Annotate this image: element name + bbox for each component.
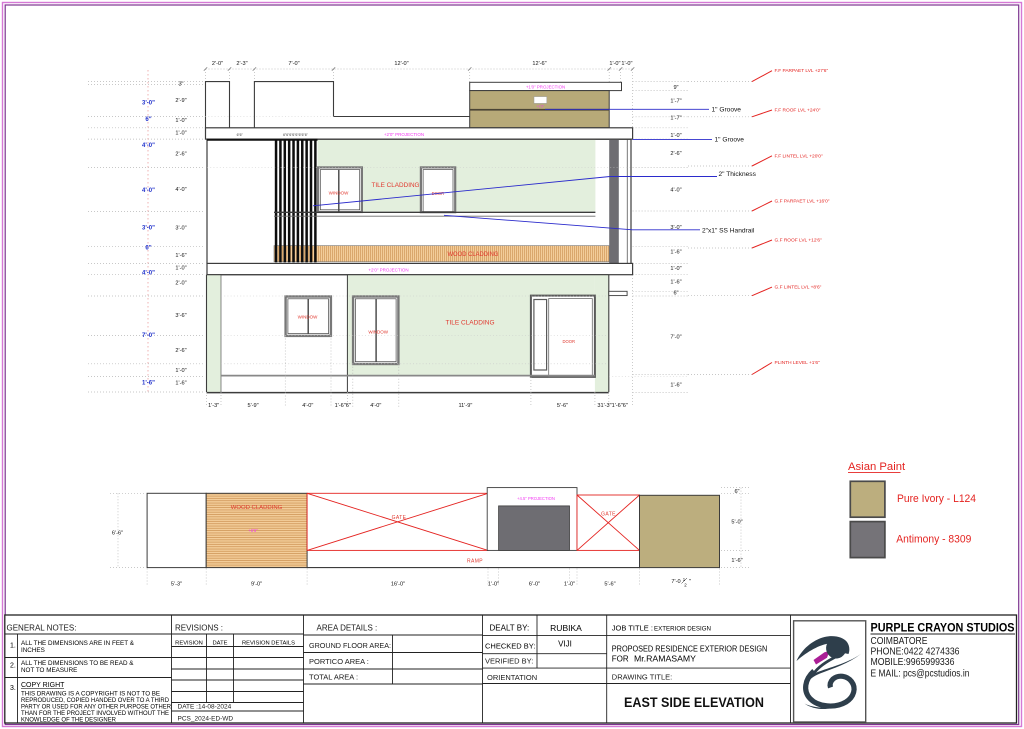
svg-text:2'-6": 2'-6" (670, 151, 681, 157)
svg-text:4'-0": 4'-0" (302, 403, 313, 409)
svg-text:CHECKED BY:: CHECKED BY: (485, 642, 535, 651)
svg-text:PCS_2024-ED-WD: PCS_2024-ED-WD (178, 716, 234, 723)
svg-text:2'-6": 2'-6" (175, 348, 186, 354)
svg-text:+2'0" PROJECTION: +2'0" PROJECTION (384, 132, 424, 137)
svg-text:3.: 3. (10, 685, 16, 692)
svg-text:9": 9" (673, 85, 678, 91)
svg-text:MOBILE:9965999336: MOBILE:9965999336 (871, 656, 955, 668)
svg-text:5'-6": 5'-6" (557, 403, 568, 409)
svg-text:1'-6": 1'-6" (670, 250, 681, 256)
svg-text:1" Groove: 1" Groove (712, 107, 742, 114)
svg-text:GROUND FLOOR AREA:: GROUND FLOOR AREA: (309, 641, 391, 650)
svg-text:DATE :14-08-2024: DATE :14-08-2024 (178, 704, 232, 711)
svg-text:ALL THE DIMENSIONS ARE IN FEET: ALL THE DIMENSIONS ARE IN FEET & (21, 640, 135, 647)
svg-text:1'-7": 1'-7" (670, 115, 681, 121)
svg-text:WOOD CLADDING: WOOD CLADDING (231, 505, 283, 511)
svg-text:GENERAL NOTES:: GENERAL NOTES: (7, 624, 77, 633)
svg-text:7'-0: 7'-0 (671, 579, 680, 585)
svg-text:4'-0": 4'-0" (142, 188, 155, 194)
svg-text:PROPOSED RESIDENCE EXTERIOR DE: PROPOSED RESIDENCE EXTERIOR DESIGN (612, 645, 768, 654)
svg-text:6'-0": 6'-0" (529, 582, 540, 588)
svg-text:2'-0": 2'-0" (212, 61, 223, 67)
svg-text:5'-9": 5'-9" (248, 403, 259, 409)
svg-text:DEALT BY:: DEALT BY: (490, 624, 530, 633)
svg-text:F.F LINTEL LVL +20'0": F.F LINTEL LVL +20'0" (775, 153, 823, 159)
svg-text:JOB TITLE :: JOB TITLE : (612, 624, 653, 633)
svg-text:INCHES: INCHES (21, 647, 45, 654)
svg-text:DRAWING TITLE:: DRAWING TITLE: (612, 673, 672, 682)
svg-text:4'-0": 4'-0" (142, 143, 155, 149)
svg-text:2" Thickness: 2" Thickness (719, 171, 757, 178)
svg-text:E MAIL: pcs@pcstudios.in: E MAIL: pcs@pcstudios.in (871, 668, 970, 680)
svg-text:F.F PARPAET LVL +27'6": F.F PARPAET LVL +27'6" (775, 68, 829, 74)
svg-text:7'-0": 7'-0" (142, 333, 155, 339)
svg-text:1'-3": 1'-3" (208, 403, 219, 409)
svg-text:3'-0": 3'-0" (175, 226, 186, 232)
svg-text:+6'6": +6'6" (248, 528, 258, 533)
svg-text:4'-0": 4'-0" (370, 403, 381, 409)
svg-text:6"6"6"6"6"6"6"6": 6"6"6"6"6"6"6"6" (283, 133, 309, 137)
svg-text:ALL THE DIMENSIONS TO BE READ: ALL THE DIMENSIONS TO BE READ & (21, 660, 134, 667)
svg-text:COPY RIGHT: COPY RIGHT (21, 682, 65, 689)
svg-text:5'-6": 5'-6" (604, 582, 615, 588)
svg-text:VERIFIED BY:: VERIFIED BY: (485, 657, 533, 666)
svg-text:16'-0": 16'-0" (391, 582, 405, 588)
svg-text:2: 2 (684, 583, 687, 588)
svg-text:6'-6": 6'-6" (112, 531, 123, 537)
svg-text:EAST SIDE ELEVATION: EAST SIDE ELEVATION (624, 695, 764, 710)
svg-text:G.F ROOF LVL +12'6": G.F ROOF LVL +12'6" (775, 238, 823, 244)
svg-text:TILE CLADDING: TILE CLADDING (372, 182, 420, 189)
svg-text:VIJI: VIJI (558, 640, 572, 649)
svg-text:1'-0": 1'-0" (670, 133, 681, 139)
svg-text:1'-7": 1'-7" (670, 98, 681, 104)
svg-text:WOOD CLADDING: WOOD CLADDING (448, 251, 499, 258)
svg-text:WINDOW: WINDOW (298, 314, 318, 319)
svg-text:DATE: DATE (212, 641, 227, 647)
svg-text:6": 6" (673, 291, 678, 297)
svg-text:Antimony - 8309: Antimony - 8309 (896, 534, 971, 546)
svg-text:1'-0": 1'-0" (621, 61, 632, 67)
svg-text:6": 6" (734, 489, 739, 495)
svg-text:PORTICO AREA :: PORTICO AREA : (309, 657, 369, 666)
svg-text:TILE CLADDING: TILE CLADDING (446, 320, 495, 327)
svg-text:G.F PARPAET LVL +16'0": G.F PARPAET LVL +16'0" (775, 199, 830, 205)
svg-text:1'-0": 1'-0" (175, 368, 186, 374)
svg-text:4'-0": 4'-0" (175, 187, 186, 193)
svg-text:RUBIKA: RUBIKA (550, 623, 582, 633)
svg-text:9'-0": 9'-0" (251, 582, 262, 588)
svg-text:FOR: FOR (612, 655, 629, 664)
svg-text:EXTERIOR DESIGN: EXTERIOR DESIGN (654, 625, 711, 632)
svg-text:": " (689, 579, 691, 585)
svg-text:1'-6": 1'-6" (670, 383, 681, 389)
svg-text:2"x1" SS Handrail: 2"x1" SS Handrail (702, 227, 755, 234)
svg-text:3'-0": 3'-0" (142, 101, 155, 107)
svg-text:12'-6": 12'-6" (532, 61, 546, 67)
svg-text:1'-0": 1'-0" (564, 582, 575, 588)
svg-text:1'-0": 1'-0" (488, 582, 499, 588)
svg-text:4'-0": 4'-0" (142, 271, 155, 277)
svg-text:1'-6"6": 1'-6"6" (335, 403, 351, 409)
svg-text:3'-0": 3'-0" (142, 226, 155, 232)
svg-text:11'-9": 11'-9" (458, 403, 472, 409)
svg-text:PURPLE CRAYON STUDIOS: PURPLE CRAYON STUDIOS (871, 621, 1015, 635)
svg-text:NOT TO MEASURE: NOT TO MEASURE (21, 667, 77, 674)
svg-text:GATE: GATE (601, 512, 616, 518)
svg-text:KNOWLEDGE OF THE DESIGNER: KNOWLEDGE OF THE DESIGNER (21, 717, 117, 724)
svg-text:Mr.RAMASAMY: Mr.RAMASAMY (634, 654, 696, 664)
svg-text:REVISION: REVISION (175, 641, 203, 647)
svg-text:1'-0": 1'-0" (175, 266, 186, 272)
svg-text:1'-0": 1'-0" (175, 118, 186, 124)
svg-text:WINDOW: WINDOW (368, 329, 388, 334)
svg-text:AREA DETAILS :: AREA DETAILS : (317, 624, 378, 633)
svg-text:Pure Ivory - L124: Pure Ivory - L124 (897, 493, 976, 505)
svg-text:REVISION DETAILS: REVISION DETAILS (242, 641, 295, 647)
svg-text:2'-3": 2'-3" (236, 61, 247, 67)
svg-text:1'-0": 1'-0" (670, 266, 681, 272)
svg-text:+1'0" PROJECTION: +1'0" PROJECTION (526, 85, 565, 90)
svg-text:1'-6": 1'-6" (670, 279, 681, 285)
svg-text:RAMP: RAMP (467, 558, 483, 564)
svg-text:+4.5" PROJECTION: +4.5" PROJECTION (517, 496, 555, 501)
svg-text:Asian Paint: Asian Paint (848, 461, 906, 473)
svg-text:G.F LINTEL LVL +8'6": G.F LINTEL LVL +8'6" (775, 285, 822, 291)
svg-text:2'-9": 2'-9" (175, 98, 186, 104)
svg-text:1'-6": 1'-6" (142, 381, 155, 387)
svg-text:ORIENTATION: ORIENTATION (487, 673, 537, 682)
svg-text:31'-3"1'-6"6": 31'-3"1'-6"6" (597, 403, 627, 409)
svg-text:6": 6" (145, 246, 151, 252)
svg-text:6": 6" (145, 117, 151, 123)
svg-text:F.F ROOF LVL +24'0": F.F ROOF LVL +24'0" (775, 108, 821, 114)
svg-text:7'-0": 7'-0" (288, 61, 299, 67)
svg-text:12'-0": 12'-0" (394, 61, 408, 67)
svg-text:5'-0": 5'-0" (731, 520, 742, 526)
svg-text:1'-0": 1'-0" (609, 61, 620, 67)
svg-text:+1'0": +1'0" (537, 104, 544, 108)
svg-text:7'-0": 7'-0" (670, 334, 681, 340)
svg-text:1'-0": 1'-0" (175, 131, 186, 137)
svg-text:1'-6": 1'-6" (175, 253, 186, 259)
svg-text:WINDOW: WINDOW (329, 190, 349, 195)
svg-text:GATE: GATE (392, 515, 407, 521)
svg-text:2.: 2. (10, 663, 16, 670)
svg-text:PLINTH LEVEL +1'6": PLINTH LEVEL +1'6" (775, 360, 821, 366)
svg-text:6"6": 6"6" (237, 133, 244, 137)
svg-text:2'-0": 2'-0" (175, 281, 186, 287)
svg-text:5'-3": 5'-3" (171, 582, 182, 588)
svg-text:1" Groove: 1" Groove (715, 136, 745, 143)
svg-text:2'-6": 2'-6" (175, 152, 186, 158)
svg-text:DOOR: DOOR (563, 339, 576, 344)
svg-text:TOTAL AREA :: TOTAL AREA : (309, 673, 358, 682)
svg-text:REVISIONS :: REVISIONS : (175, 624, 223, 633)
svg-text:3'-6": 3'-6" (175, 313, 186, 319)
svg-text:4'-0": 4'-0" (670, 187, 681, 193)
svg-text:1.: 1. (10, 643, 16, 650)
svg-text:3": 3" (178, 82, 183, 88)
svg-text:1'-6": 1'-6" (731, 558, 742, 564)
svg-text:1'-6": 1'-6" (175, 381, 186, 387)
svg-text:+2'0" PROJECTION: +2'0" PROJECTION (368, 267, 408, 272)
